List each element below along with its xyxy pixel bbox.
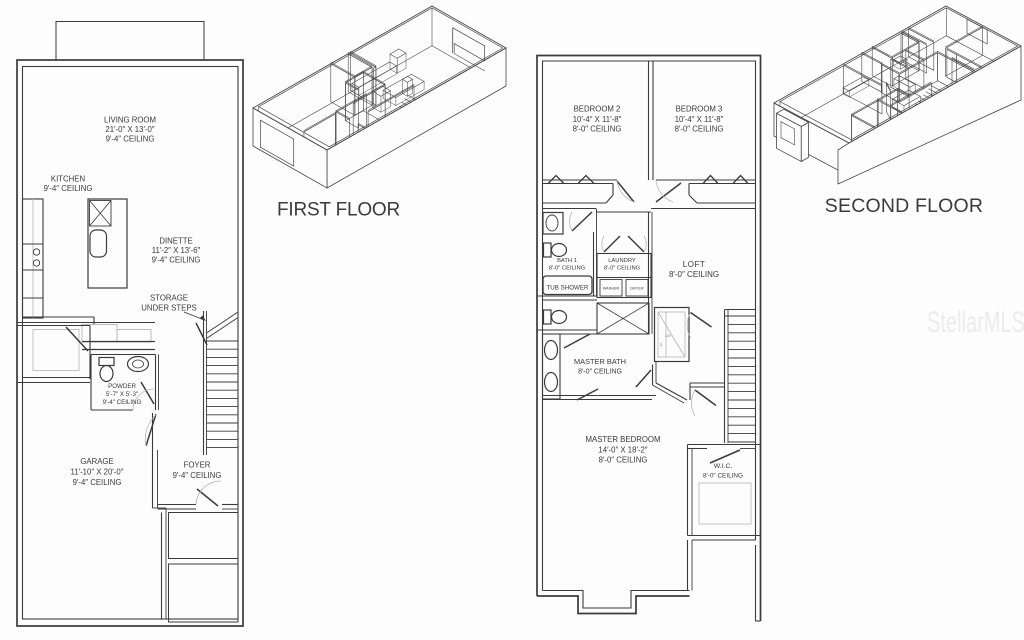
svg-text:W.I.C.: W.I.C. (714, 463, 733, 470)
svg-text:2: 2 (660, 343, 662, 347)
svg-text:9′-4″ CEILING: 9′-4″ CEILING (44, 184, 93, 193)
svg-text:FIRST FLOOR: FIRST FLOOR (277, 200, 400, 221)
svg-text:STORAGE: STORAGE (150, 294, 188, 303)
svg-text:TUB SHOWER: TUB SHOWER (547, 285, 589, 292)
svg-text:LIN: LIN (665, 334, 671, 338)
svg-text:21′-0″ X 13′-0″: 21′-0″ X 13′-0″ (105, 125, 154, 134)
svg-text:MASTER BATH: MASTER BATH (574, 357, 626, 366)
svg-text:SECOND FLOOR: SECOND FLOOR (825, 195, 983, 217)
svg-text:11′-2″ X 13′-6″: 11′-2″ X 13′-6″ (152, 246, 201, 255)
svg-text:8′-0″ CEILING: 8′-0″ CEILING (703, 473, 743, 480)
svg-text:9′-4″ CEILING: 9′-4″ CEILING (152, 256, 201, 265)
svg-text:9′-4″ CEILING: 9′-4″ CEILING (106, 135, 155, 144)
svg-text:LIVING ROOM: LIVING ROOM (104, 116, 156, 125)
svg-text:8′-0″ CEILING: 8′-0″ CEILING (549, 266, 586, 272)
svg-text:9′-4″ CEILING: 9′-4″ CEILING (73, 478, 122, 487)
svg-text:LOFT: LOFT (683, 260, 705, 269)
svg-text:DINETTE: DINETTE (159, 237, 192, 246)
svg-text:BATH 1: BATH 1 (557, 258, 577, 264)
svg-text:8′-0″ CEILING: 8′-0″ CEILING (675, 125, 724, 134)
svg-text:StellarMLS: StellarMLS (927, 306, 1024, 339)
svg-text:8′-0″ CEILING: 8′-0″ CEILING (669, 270, 719, 279)
svg-text:UNDER STEPS: UNDER STEPS (141, 304, 196, 313)
svg-text:WASHER: WASHER (603, 287, 620, 291)
svg-text:KITCHEN: KITCHEN (51, 175, 85, 184)
svg-text:10′-4″ X 11′-8″: 10′-4″ X 11′-8″ (675, 115, 724, 124)
svg-text:8′-0″ CEILING: 8′-0″ CEILING (573, 125, 622, 134)
svg-text:LAUNDRY: LAUNDRY (608, 258, 636, 264)
svg-text:14′-0″ X 18′-2″: 14′-0″ X 18′-2″ (598, 446, 647, 455)
svg-text:BEDROOM 3: BEDROOM 3 (676, 105, 723, 114)
svg-text:BEDROOM 2: BEDROOM 2 (574, 105, 621, 114)
svg-text:9′-4″ CEILING: 9′-4″ CEILING (103, 399, 142, 406)
svg-text:POWDER: POWDER (108, 383, 136, 390)
svg-text:GARAGE: GARAGE (80, 457, 113, 466)
svg-text:MASTER BEDROOM: MASTER BEDROOM (586, 435, 661, 444)
svg-text:5′-7″ X 5′-3″: 5′-7″ X 5′-3″ (106, 391, 139, 398)
svg-text:10′-4″ X 11′-8″: 10′-4″ X 11′-8″ (573, 115, 622, 124)
svg-text:9′-4″ CEILING: 9′-4″ CEILING (173, 471, 222, 480)
svg-text:FOYER: FOYER (184, 461, 211, 470)
svg-text:8′-0″ CEILING: 8′-0″ CEILING (599, 456, 648, 465)
svg-text:11′-10″ X 20′-0″: 11′-10″ X 20′-0″ (71, 468, 124, 477)
svg-text:8′-0″ CEILING: 8′-0″ CEILING (578, 369, 622, 376)
svg-text:8′-0″ CEILING: 8′-0″ CEILING (604, 266, 641, 272)
svg-text:DRYER: DRYER (630, 287, 643, 291)
